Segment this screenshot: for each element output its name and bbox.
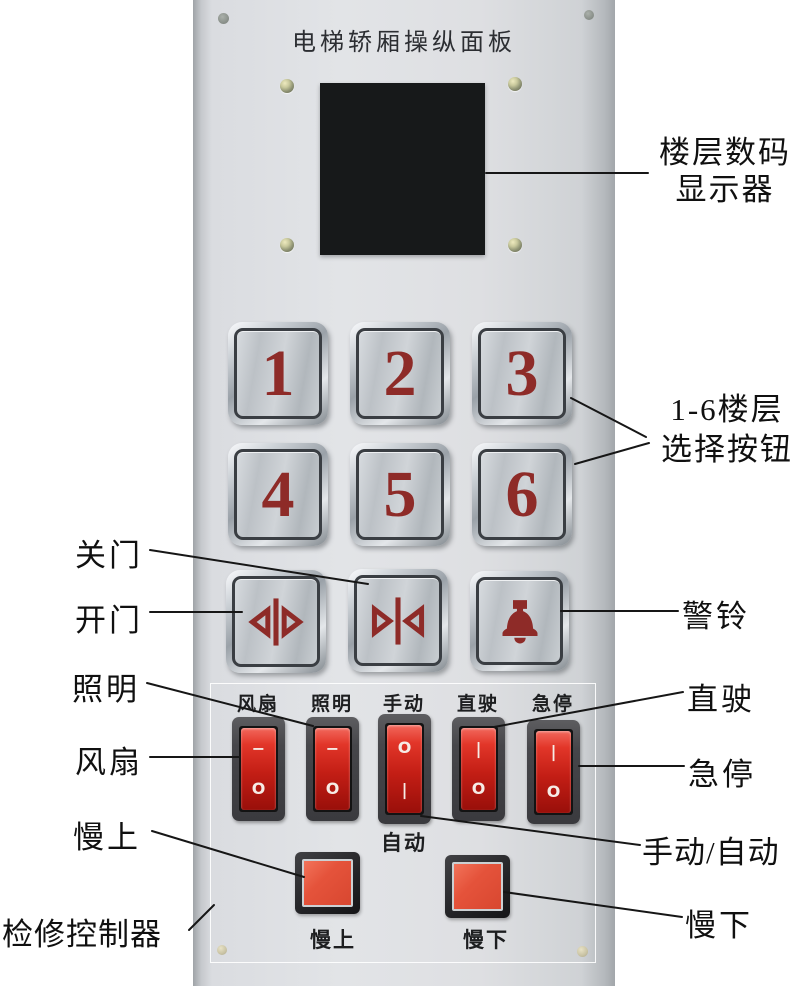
door-open-button[interactable] (226, 570, 326, 673)
button-label-slow-up: 慢上 (295, 924, 371, 954)
floor-button-3-digit: 3 (506, 341, 539, 407)
slow-up-button[interactable] (295, 852, 360, 914)
callout-floor-display-line1: 楼层数码 (643, 134, 807, 171)
callout-floor-display: 楼层数码 显示器 (643, 134, 807, 208)
alarm-bell-button[interactable] (470, 571, 569, 671)
switch-mark: O (387, 740, 422, 756)
switch-mark: O (315, 781, 350, 797)
switch-label-fan: 风扇 (220, 689, 296, 716)
fan-switch-rocker: − O (241, 728, 276, 810)
callout-floor-select: 1-6楼层 选择按钮 (645, 390, 809, 470)
callout-fan: 风扇 (75, 737, 143, 782)
switch-mark: | (387, 782, 422, 798)
emergency-stop-switch-rocker: | O (536, 731, 571, 813)
floor-button-5-digit: 5 (384, 462, 417, 528)
switch-mark: | (461, 741, 496, 757)
callout-floor-select-line2: 选择按钮 (645, 430, 809, 470)
screw-display-bottom-right (508, 238, 522, 252)
switch-mark: − (241, 741, 276, 757)
slow-down-button-face (452, 862, 503, 911)
switch-label-direct: 直驶 (440, 689, 516, 716)
callout-lighting: 照明 (72, 664, 140, 709)
floor-button-6[interactable]: 6 (472, 443, 572, 546)
slow-down-button[interactable] (445, 855, 510, 918)
switch-mark: O (536, 784, 571, 800)
callout-slow-up: 慢上 (73, 812, 141, 857)
switch-mark: | (536, 744, 571, 760)
panel-title: 电梯轿厢操纵面板 (193, 22, 615, 57)
switch-label-auto: 自动 (366, 827, 442, 857)
screw-display-top-left (280, 79, 294, 93)
switch-mark: O (461, 781, 496, 797)
emergency-stop-switch[interactable]: | O (527, 720, 580, 824)
switch-mark: − (315, 741, 350, 757)
direct-drive-switch-rocker: | O (461, 728, 496, 810)
screw-display-top-right (508, 77, 522, 91)
callout-emergency-stop: 急停 (688, 749, 756, 794)
floor-button-2[interactable]: 2 (350, 322, 450, 425)
callout-bell: 警铃 (682, 591, 750, 636)
mounting-hole-top-left (218, 13, 229, 24)
floor-button-5[interactable]: 5 (350, 443, 450, 546)
screw-display-bottom-left (280, 238, 294, 252)
callout-inspection-controller: 检修控制器 (2, 909, 162, 954)
switch-mark: O (241, 781, 276, 797)
floor-button-4-digit: 4 (262, 462, 295, 528)
switch-label-estop: 急停 (515, 689, 591, 716)
door-open-icon (247, 593, 305, 651)
elevator-panel: 电梯轿厢操纵面板 1 2 3 4 5 6 (193, 0, 615, 986)
screw-bottom-left (217, 945, 227, 955)
fan-switch[interactable]: − O (232, 717, 285, 821)
callout-close-door: 关门 (75, 530, 143, 575)
annotated-figure: 电梯轿厢操纵面板 1 2 3 4 5 6 (0, 0, 810, 986)
floor-button-6-digit: 6 (506, 462, 539, 528)
manual-auto-switch-rocker: O | (387, 725, 422, 813)
callout-floor-select-line1: 1-6楼层 (645, 390, 809, 430)
switch-label-manual: 手动 (366, 689, 442, 716)
floor-button-1-digit: 1 (262, 341, 295, 407)
floor-number-display (320, 83, 485, 255)
callout-manual-auto: 手动/自动 (642, 827, 780, 872)
light-switch-rocker: − O (315, 728, 350, 810)
floor-button-2-digit: 2 (384, 341, 417, 407)
callout-slow-down: 慢下 (685, 900, 753, 945)
direct-drive-switch[interactable]: | O (452, 717, 505, 821)
slow-up-button-face (302, 859, 353, 907)
floor-button-4[interactable]: 4 (228, 443, 328, 546)
switch-label-light: 照明 (294, 689, 370, 716)
callout-open-door: 开门 (75, 595, 143, 640)
door-close-icon (369, 592, 427, 650)
callout-direct-drive: 直驶 (687, 674, 755, 719)
bell-icon (492, 594, 548, 650)
light-switch[interactable]: − O (306, 717, 359, 821)
door-close-button[interactable] (348, 569, 448, 672)
button-label-slow-down: 慢下 (448, 924, 524, 954)
manual-auto-switch[interactable]: O | (378, 714, 431, 824)
floor-button-1[interactable]: 1 (228, 322, 328, 425)
floor-button-3[interactable]: 3 (472, 322, 572, 425)
callout-floor-display-line2: 显示器 (643, 171, 807, 208)
mounting-hole-top-right (584, 10, 594, 20)
screw-bottom-right (577, 946, 588, 957)
